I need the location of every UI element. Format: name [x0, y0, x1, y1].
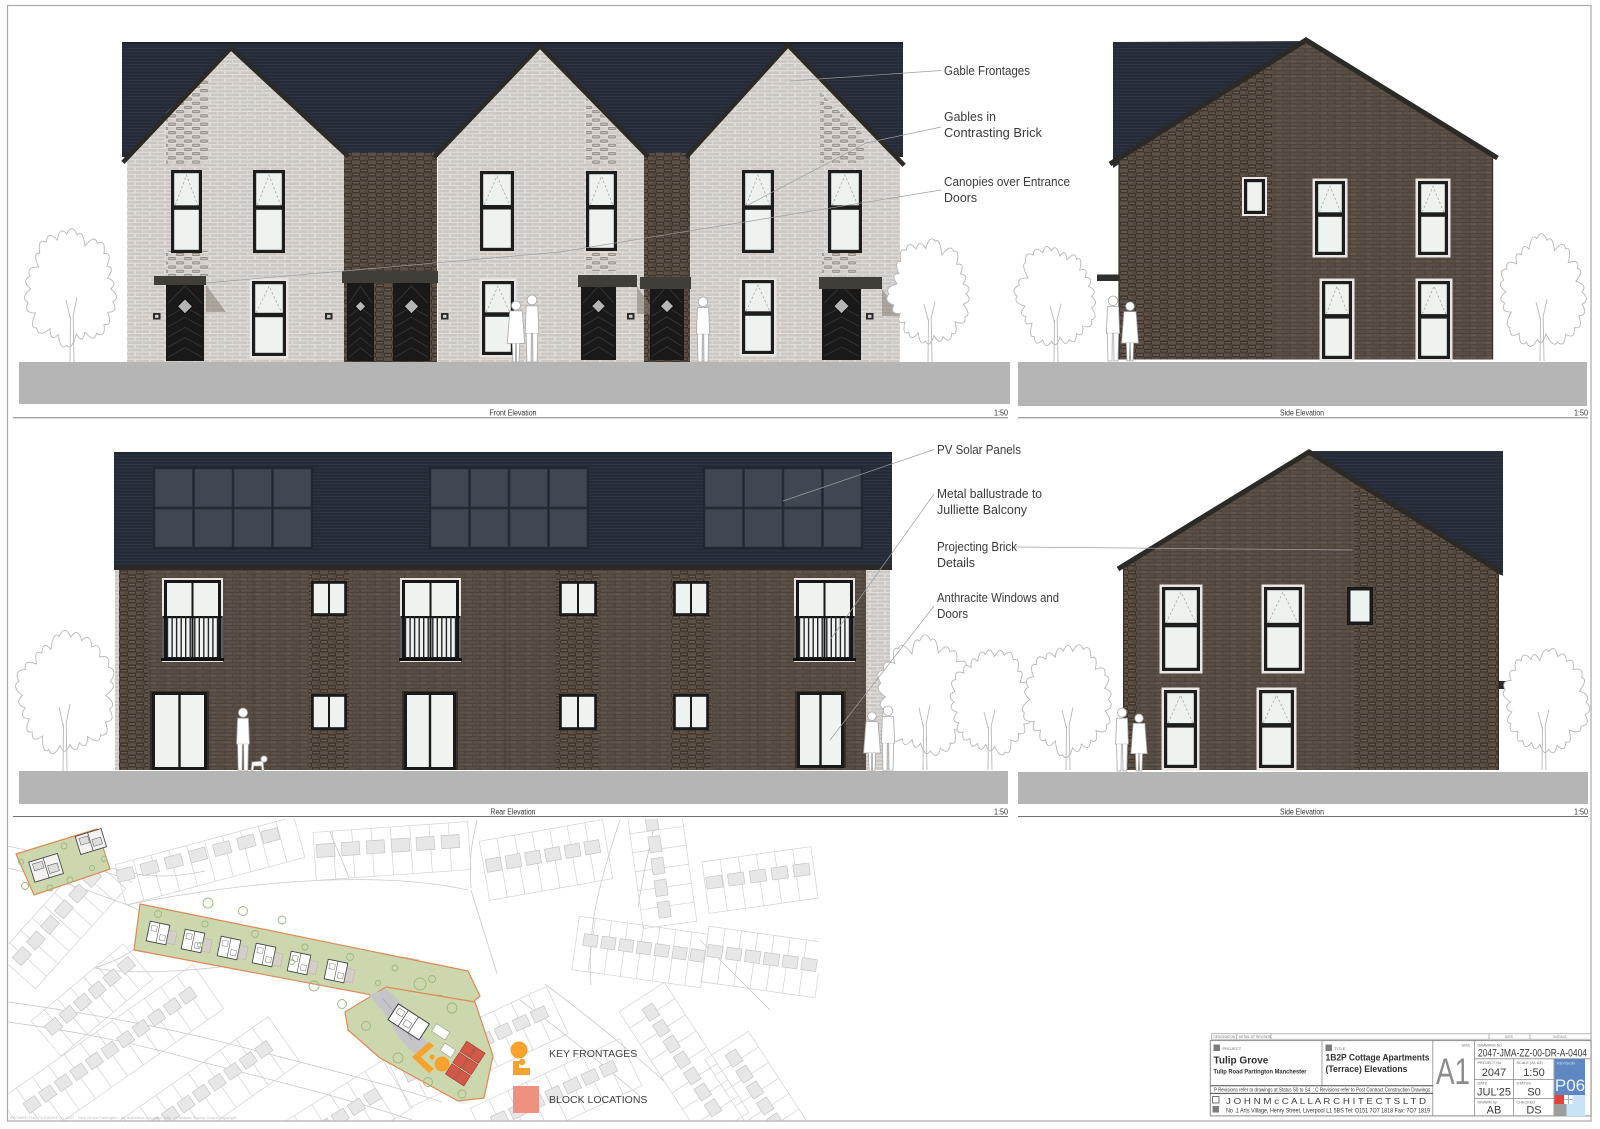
svg-text:JUL'25: JUL'25 — [1477, 1087, 1511, 1099]
svg-text:BLOCK LOCATIONS: BLOCK LOCATIONS — [549, 1094, 647, 1106]
svg-text:Doors: Doors — [944, 191, 977, 205]
svg-text:Gable Frontages: Gable Frontages — [944, 64, 1030, 78]
svg-text:REVISION: REVISION — [1557, 1062, 1575, 1066]
svg-text:No .1 Arts Village, Henry: No .1 Arts Village, Henry Street, Liverp… — [1226, 1108, 1430, 1115]
svg-text:SIZE: SIZE — [1462, 1044, 1471, 1048]
svg-text:1B2P Cottage Apartments: 1B2P Cottage Apartments — [1326, 1053, 1430, 1063]
svg-text:1:50: 1:50 — [1574, 808, 1588, 817]
svg-text:Gables in: Gables in — [944, 110, 996, 124]
svg-text:Tulip Grove: Tulip Grove — [1214, 1056, 1269, 1067]
svg-text:Metal ballustrade to: Metal ballustrade to — [937, 487, 1042, 501]
svg-text:(Terrace) Elevations: (Terrace) Elevations — [1326, 1064, 1408, 1074]
svg-text:Doors: Doors — [937, 607, 968, 621]
svg-text:PROJECT: PROJECT — [1223, 1046, 1242, 1051]
svg-text:Contrasting Brick: Contrasting Brick — [944, 126, 1043, 140]
svg-text:DESIGNATION: DESIGNATION — [1214, 1035, 1236, 1039]
svg-text:P Revisions refer to drawings: P Revisions refer to drawings at Status … — [1214, 1087, 1430, 1093]
svg-text:Tulip Road Partington Manches: Tulip Road Partington Manchester — [1214, 1069, 1307, 1076]
svg-text:INITIALS: INITIALS — [1554, 1035, 1567, 1039]
svg-text:DATE: DATE — [1505, 1035, 1513, 1039]
svg-text:PROJECT No: PROJECT No — [1478, 1061, 1502, 1065]
svg-text:1:50: 1:50 — [994, 409, 1008, 418]
svg-text:P06: P06 — [1555, 1076, 1585, 1095]
svg-text:Rear Elevation: Rear Elevation — [491, 808, 536, 817]
svg-text:TITLE: TITLE — [1335, 1046, 1346, 1051]
svg-text:Side Elevation: Side Elevation — [1280, 808, 1324, 817]
svg-text:Julliette Balcony: Julliette Balcony — [937, 503, 1028, 517]
svg-text:DATE: DATE — [1478, 1082, 1488, 1086]
svg-text:1:50: 1:50 — [1523, 1067, 1544, 1079]
svg-text:1:50: 1:50 — [1574, 409, 1588, 418]
svg-text:DS: DS — [1526, 1105, 1541, 1117]
svg-text:KEY FRONTAGES: KEY FRONTAGES — [549, 1048, 637, 1060]
svg-text:Side Elevation: Side Elevation — [1280, 409, 1324, 418]
svg-text:DETAIL OF REVISION: DETAIL OF REVISION — [1239, 1035, 1272, 1039]
svg-text:AB: AB — [1487, 1105, 1502, 1117]
svg-text:2047: 2047 — [1482, 1067, 1506, 1079]
svg-text:STATUS: STATUS — [1517, 1082, 1532, 1086]
svg-text:Front Elevation: Front Elevation — [490, 409, 537, 418]
svg-text:A1: A1 — [1436, 1051, 1470, 1092]
svg-text:Canopies over Entrance: Canopies over Entrance — [944, 175, 1070, 189]
svg-text:Anthracite Windows and: Anthracite Windows and — [937, 591, 1059, 605]
svg-text:PV Solar Panels: PV Solar Panels — [937, 443, 1021, 457]
svg-text:J O H N M c C A L L A R C: J O H N M c C A L L A R C H I T E C T S … — [1226, 1096, 1426, 1106]
svg-text:S0: S0 — [1527, 1087, 1540, 1099]
svg-text:SCALE (A1 A3): SCALE (A1 A3) — [1517, 1061, 1544, 1065]
svg-text:2047-JMA-ZZ-00-DR-A-0404: 2047-JMA-ZZ-00-DR-A-0404 — [1478, 1048, 1587, 1060]
svg-text:1:50: 1:50 — [994, 808, 1008, 817]
svg-text:PROMAP/TNG FILEWARE (c) 2047: PROMAP/TNG FILEWARE (c) 2047 - Tulip Gro… — [10, 1115, 237, 1120]
svg-text:Projecting Brick: Projecting Brick — [937, 540, 1018, 554]
svg-text:Details: Details — [937, 556, 975, 570]
